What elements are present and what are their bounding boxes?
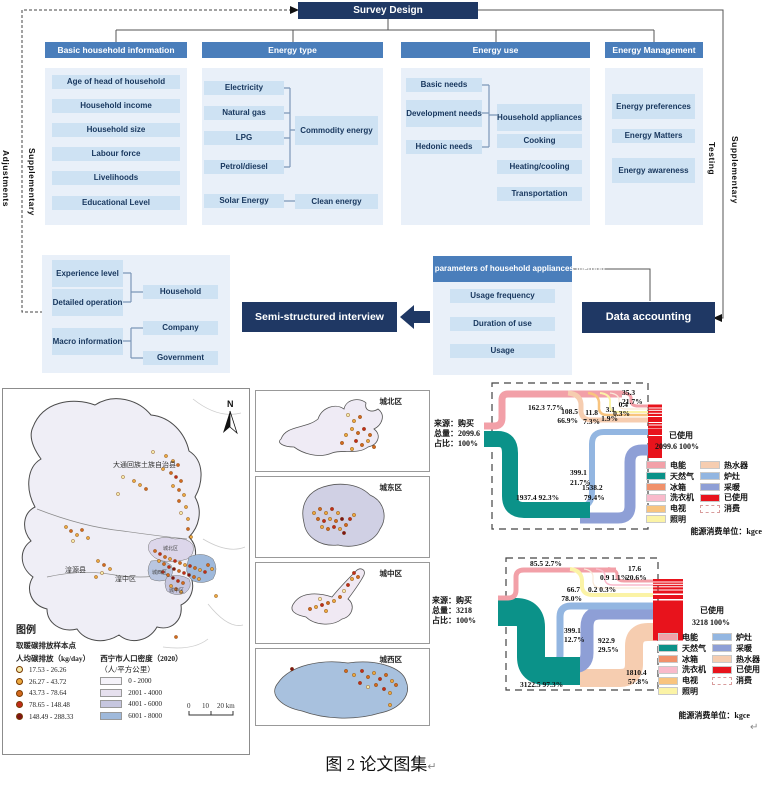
item-cooking: Cooking: [497, 134, 582, 148]
legend-row: 已使用: [700, 492, 748, 503]
label-adjustments: Adjustments: [1, 150, 11, 207]
north-arrow: N: [223, 399, 237, 433]
legend-density-row: 6001 - 8000: [100, 710, 183, 722]
dot-swatch: [16, 690, 23, 697]
item-commodity-energy: Commodity energy: [295, 116, 378, 145]
swatch: [646, 483, 666, 491]
density-swatch: [100, 712, 122, 720]
map-legend: 图例 取暖碳排放样本点 人均碳排放（kg/day） 17.53 - 26.26 …: [16, 621, 183, 722]
swatch: [700, 472, 720, 480]
svg-text:66.9%: 66.9%: [557, 416, 578, 425]
svg-text:1937.4 92.3%: 1937.4 92.3%: [516, 493, 559, 502]
dot-swatch: [16, 666, 23, 673]
svg-text:79.4%: 79.4%: [584, 493, 605, 502]
label-huangzhong: 湟中区: [115, 574, 136, 583]
swatch: [658, 687, 678, 695]
svg-text:3122.5 97.3%: 3122.5 97.3%: [520, 680, 563, 689]
inset-title-chengxi: 城西区: [380, 654, 403, 664]
figure-caption: 图 2 论文图集↵: [0, 750, 762, 775]
svg-text:11.8: 11.8: [585, 408, 598, 417]
dot-swatch: [16, 678, 23, 685]
svg-text:66.7: 66.7: [567, 585, 580, 594]
svg-text:2099.6 100%: 2099.6 100%: [655, 442, 699, 451]
item-educational-level: Educational Level: [52, 196, 180, 210]
svg-text:78.0%: 78.0%: [561, 594, 582, 603]
swatch: [646, 461, 666, 469]
swatch: [658, 666, 678, 674]
swatch: [658, 633, 678, 641]
item-natural-gas: Natural gas: [204, 106, 284, 120]
label-chengbei-small: 城北区: [163, 545, 178, 552]
legend-row: 冰箱: [658, 654, 706, 665]
svg-text:总量：3218: 总量：3218: [432, 605, 472, 615]
legend-row: 电能: [658, 632, 706, 643]
item-macro-information: Macro information: [52, 328, 123, 355]
svg-text:21.7%: 21.7%: [622, 397, 643, 406]
svg-text:12.7%: 12.7%: [564, 635, 585, 644]
item-hedonic-needs: Hedonic needs: [406, 140, 482, 154]
inset-chengbei: 城北区: [255, 390, 430, 472]
legend-row: 消费: [712, 675, 760, 686]
legend-row: 电视: [646, 503, 694, 514]
legend-class-row: 17.53 - 26.26: [16, 664, 90, 676]
swatch: [700, 461, 720, 469]
svg-text:17.6: 17.6: [628, 564, 641, 573]
legend-row: 炉灶: [712, 632, 760, 643]
legend-row: 热水器: [700, 460, 748, 471]
item-household-size: Household size: [52, 123, 180, 137]
svg-text:已使用: 已使用: [669, 430, 693, 440]
swatch: [712, 666, 732, 674]
legend-row: 消费: [700, 503, 748, 514]
region-outline: [22, 399, 201, 641]
svg-text:总量：2099.6: 总量：2099.6: [434, 428, 480, 438]
item-usage-frequency: Usage frequency: [450, 289, 555, 303]
swatch-consumption: [712, 677, 732, 685]
svg-text:占比：100%: 占比：100%: [432, 615, 476, 625]
svg-text:162.3 7.7%: 162.3 7.7%: [528, 403, 564, 412]
inset-title-chengdong: 城东区: [380, 482, 403, 492]
header-energy-type: Energy type: [202, 42, 383, 58]
inset-title-chengzhong: 城中区: [380, 568, 403, 578]
legend-density-row: 0 - 2000: [100, 675, 183, 687]
item-usage: Usage: [450, 344, 555, 358]
legend-row: 天然气: [646, 471, 694, 482]
figure-page: Survey Design Basic household informatio…: [0, 0, 762, 810]
interview-arrow: [400, 305, 430, 329]
label-supplementary-right: Supplementary: [730, 136, 740, 204]
survey-design-box: Survey Design: [298, 2, 478, 19]
dot-swatch: [16, 713, 23, 720]
item-experience-level: Experience level: [52, 260, 123, 287]
sankey1-unit: 能源消费单位：kgce: [620, 526, 762, 537]
legend-class-row: 78.65 - 148.48: [16, 699, 90, 711]
header-energy-management: Energy Management: [605, 42, 703, 58]
item-labour-force: Labour force: [52, 147, 180, 161]
semi-structured-interview-box: Semi-structured interview: [242, 302, 397, 332]
svg-text:0: 0: [187, 702, 191, 710]
item-government: Government: [143, 351, 218, 365]
item-age-of-head: Age of head of household: [52, 75, 180, 89]
legend-row: 照明: [658, 686, 706, 697]
legend-row: 采暖: [712, 643, 760, 654]
label-datong: 大通回族土族自治县: [113, 460, 176, 469]
density-swatch: [100, 689, 122, 697]
sankey2-legend: 电能 天然气 冰箱 洗衣机 电视 照明 炉灶 采暖 热水器 已使用 消费: [658, 632, 760, 697]
item-energy-matters: Energy Matters: [612, 129, 695, 143]
main-map-panel: 大通回族土族自治县 湟源县 湟中区 城北区 城西区 城中区 N 0 10 20 …: [2, 388, 250, 755]
legend-class-row: 43.73 - 78.64: [16, 687, 90, 699]
legend-class-row: 148.49 - 288.33: [16, 711, 90, 723]
svg-text:7.3%: 7.3%: [583, 417, 600, 426]
legend-row: 电视: [658, 675, 706, 686]
svg-text:20 km: 20 km: [217, 702, 235, 710]
item-electricity: Electricity: [204, 81, 284, 95]
item-petrol-diesel: Petrol/diesel: [204, 160, 284, 174]
item-household: Household: [143, 285, 218, 299]
svg-text:85.5 2.7%: 85.5 2.7%: [530, 559, 562, 568]
item-energy-preferences: Energy preferences: [612, 94, 695, 119]
density-swatch: [100, 677, 122, 685]
label-chengxi-small: 城西区: [152, 569, 167, 576]
label-supplementary-left: Supplementary: [27, 148, 37, 216]
map-legend-points-title: 取暖碳排放样本点: [16, 640, 183, 651]
item-household-appliances: Household appliances: [497, 104, 582, 131]
data-accounting-box: Data accounting: [582, 302, 715, 333]
map-legend-points-subtitle: 人均碳排放（kg/day）: [16, 653, 90, 664]
inset-chengdong: 城东区: [255, 476, 430, 558]
caption-return-mark: ↵: [427, 761, 436, 773]
svg-text:1810.4: 1810.4: [626, 668, 647, 677]
legend-row: 采暖: [700, 482, 748, 493]
svg-text:来源：购买: 来源：购买: [433, 418, 474, 428]
item-transportation: Transportation: [497, 187, 582, 201]
header-basic-info: Basic household information: [45, 42, 187, 58]
svg-text:0.3%: 0.3%: [613, 409, 630, 418]
svg-text:0.2 0.3%: 0.2 0.3%: [588, 585, 616, 594]
legend-row: 照明: [646, 514, 694, 525]
svg-text:0.9 1.1%: 0.9 1.1%: [600, 573, 628, 582]
item-detailed-operation: Detailed operation: [52, 289, 123, 316]
swatch: [712, 655, 732, 663]
item-clean-energy: Clean energy: [295, 194, 378, 209]
label-chengzhong-small: 城中区: [169, 587, 184, 594]
svg-text:399.1: 399.1: [564, 626, 581, 635]
svg-text:108.5: 108.5: [561, 407, 578, 416]
svg-text:占比：100%: 占比：100%: [434, 438, 478, 448]
header-energy-use: Energy use: [401, 42, 590, 58]
item-duration-of-use: Duration of use: [450, 317, 555, 331]
label-testing: Testing: [707, 142, 717, 175]
swatch: [700, 483, 720, 491]
item-livelihoods: Livelihoods: [52, 171, 180, 185]
svg-text:10: 10: [202, 702, 210, 710]
svg-text:N: N: [227, 399, 234, 409]
svg-text:399.1: 399.1: [570, 468, 587, 477]
return-mark: ↵: [750, 722, 758, 733]
svg-text:已使用: 已使用: [700, 605, 724, 615]
panel-energy-management: [605, 68, 703, 225]
item-lpg: LPG: [204, 131, 284, 145]
swatch: [646, 505, 666, 513]
item-household-income: Household income: [52, 99, 180, 113]
swatch: [658, 655, 678, 663]
svg-text:1538.2: 1538.2: [582, 483, 603, 492]
legend-density-row: 2001 - 4000: [100, 687, 183, 699]
legend-row: 天然气: [658, 643, 706, 654]
inset-chengxi: 城西区: [255, 648, 430, 726]
legend-density-row: 4001 - 6000: [100, 698, 183, 710]
legend-row: 热水器: [712, 654, 760, 665]
inset-title-chengbei: 城北区: [380, 396, 403, 406]
legend-row: 冰箱: [646, 482, 694, 493]
swatch: [658, 677, 678, 685]
map-legend-title: 图例: [16, 621, 183, 636]
map-legend-density-unit: （人/平方公里）: [100, 664, 183, 675]
legend-row: 电能: [646, 460, 694, 471]
sankey1-legend: 电能 天然气 冰箱 洗衣机 电视 照明 热水器 炉灶 采暖 已使用 消费: [646, 460, 748, 525]
swatch: [712, 644, 732, 652]
svg-text:3218 100%: 3218 100%: [692, 618, 730, 627]
legend-row: 炉灶: [700, 471, 748, 482]
svg-text:来源：购买: 来源：购买: [431, 595, 472, 605]
item-solar-energy: Solar Energy: [204, 194, 284, 208]
label-huangyuan: 湟源县: [65, 565, 86, 574]
swatch: [646, 515, 666, 523]
legend-class-row: 26.27 - 43.72: [16, 676, 90, 688]
swatch-consumption: [700, 505, 720, 513]
legend-row: 洗衣机: [646, 492, 694, 503]
swatch: [700, 494, 720, 502]
svg-text:29.5%: 29.5%: [598, 645, 619, 654]
item-development-needs: Development needs: [406, 100, 482, 127]
swatch: [646, 494, 666, 502]
swatch: [646, 472, 666, 480]
inset-chengzhong: 城中区: [255, 562, 430, 644]
svg-text:35.3: 35.3: [622, 388, 635, 397]
svg-text:57.8%: 57.8%: [628, 677, 649, 686]
scale-bar: 0 10 20 km: [187, 702, 235, 715]
sankey2-unit: 能源消费单位：kgce: [600, 710, 750, 721]
swatch: [712, 633, 732, 641]
svg-text:20.6%: 20.6%: [626, 573, 647, 582]
density-swatch: [100, 700, 122, 708]
swatch: [658, 644, 678, 652]
svg-text:922.9: 922.9: [598, 636, 615, 645]
legend-row: 洗衣机: [658, 664, 706, 675]
item-heating-cooling: Heating/cooling: [497, 160, 582, 174]
dot-swatch: [16, 701, 23, 708]
item-energy-awareness: Energy awareness: [612, 158, 695, 183]
item-basic-needs: Basic needs: [406, 78, 482, 92]
map-legend-density-title: 西宁市人口密度（2020）: [100, 653, 183, 664]
legend-row: 已使用: [712, 664, 760, 675]
item-company: Company: [143, 321, 218, 335]
physical-params-header: Physical parameters of household applian…: [433, 256, 572, 282]
